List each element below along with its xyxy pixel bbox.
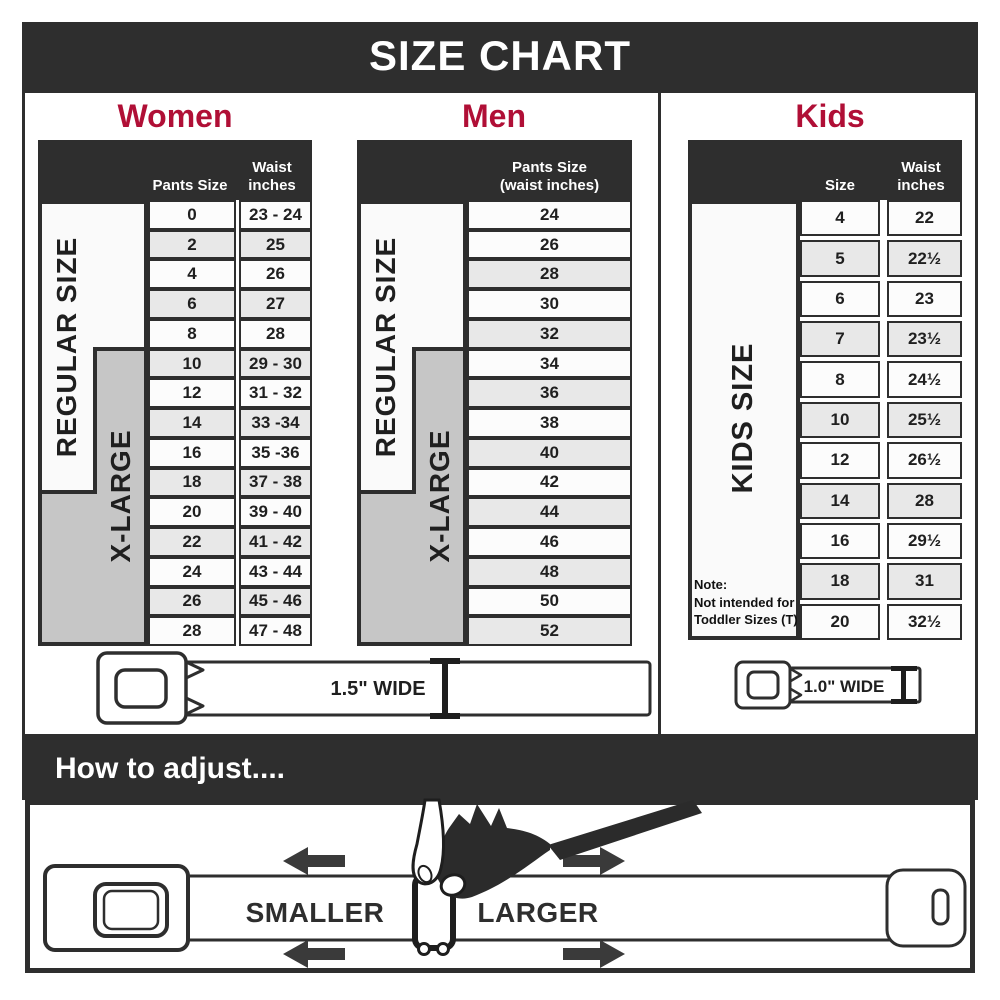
table-row: 38 bbox=[467, 408, 632, 438]
waist-cell: 28 bbox=[239, 319, 312, 349]
table-row: 1837 - 38 bbox=[148, 468, 312, 498]
size-cell: 20 bbox=[800, 604, 880, 640]
toddler-note: Note: Not intended for Toddler Sizes (T) bbox=[694, 576, 798, 629]
size-cell: 12 bbox=[800, 442, 880, 478]
belt-tip bbox=[887, 870, 965, 946]
arrow-right-icon bbox=[563, 940, 625, 968]
size-cell: 40 bbox=[467, 438, 632, 468]
waist-cell: 32½ bbox=[887, 604, 962, 640]
regular-size-label: REGULAR SIZE bbox=[51, 237, 82, 457]
belt-width-label: 1.5" WIDE bbox=[330, 678, 425, 700]
size-cell: 36 bbox=[467, 378, 632, 408]
table-row: 828 bbox=[148, 319, 312, 349]
women-pants-size-header: Pants Size bbox=[148, 177, 232, 195]
size-cell: 34 bbox=[467, 349, 632, 379]
kids-waist-header: Waist inches bbox=[880, 159, 962, 195]
size-cell: 4 bbox=[148, 259, 236, 289]
table-row: 1635 -36 bbox=[148, 438, 312, 468]
waist-cell: 37 - 38 bbox=[239, 468, 312, 498]
table-row: 42 bbox=[467, 468, 632, 498]
kids-size-label-box: KIDS SIZE bbox=[688, 200, 800, 640]
size-cell: 24 bbox=[467, 200, 632, 230]
size-cell: 26 bbox=[467, 230, 632, 260]
size-cell: 44 bbox=[467, 497, 632, 527]
table-row: 52 bbox=[467, 616, 632, 646]
table-row: 40 bbox=[467, 438, 632, 468]
table-row: 2039 - 40 bbox=[148, 497, 312, 527]
waist-cell: 22 bbox=[887, 200, 962, 236]
arrow-left-icon bbox=[283, 940, 345, 968]
kids-heading: Kids bbox=[705, 95, 955, 137]
size-cell: 24 bbox=[148, 557, 236, 587]
size-cell: 48 bbox=[467, 557, 632, 587]
table-row: 1831 bbox=[800, 563, 962, 599]
waist-cell: 35 -36 bbox=[239, 438, 312, 468]
table-row: 2847 - 48 bbox=[148, 616, 312, 646]
men-pants-size-header: Pants Size (waist inches) bbox=[467, 159, 632, 195]
waist-cell: 26½ bbox=[887, 442, 962, 478]
how-to-adjust-banner: How to adjust.... bbox=[22, 737, 978, 800]
table-row: 023 - 24 bbox=[148, 200, 312, 230]
adjust-belt-illustration: SMALLER LARGER bbox=[25, 800, 975, 973]
waist-cell: 41 - 42 bbox=[239, 527, 312, 557]
size-cell: 32 bbox=[467, 319, 632, 349]
size-cell: 50 bbox=[467, 587, 632, 617]
waist-cell: 33 -34 bbox=[239, 408, 312, 438]
women-table: 023 - 24 225 426 627 828 1029 - 30 1231 … bbox=[148, 200, 312, 646]
table-row: 1226½ bbox=[800, 442, 962, 478]
size-cell: 12 bbox=[148, 378, 236, 408]
waist-cell: 23½ bbox=[887, 321, 962, 357]
waist-cell: 25 bbox=[239, 230, 312, 260]
size-cell: 30 bbox=[467, 289, 632, 319]
xlarge-label: X-LARGE bbox=[105, 430, 136, 563]
size-cell: 28 bbox=[148, 616, 236, 646]
belt-15-illustration: 1.5" WIDE bbox=[98, 653, 650, 723]
waist-cell: 27 bbox=[239, 289, 312, 319]
size-cell: 46 bbox=[467, 527, 632, 557]
table-row: 2645 - 46 bbox=[148, 587, 312, 617]
waist-cell: 26 bbox=[239, 259, 312, 289]
waist-cell: 28 bbox=[887, 483, 962, 519]
men-size-range-labels: REGULAR SIZE X-LARGE bbox=[357, 200, 467, 646]
kids-table: 422 522½ 623 723½ 824½ 1025½ 1226½ 1428 … bbox=[800, 200, 962, 640]
table-row: 627 bbox=[148, 289, 312, 319]
how-to-adjust-heading: How to adjust.... bbox=[55, 752, 285, 786]
size-cell: 0 bbox=[148, 200, 236, 230]
size-cell: 16 bbox=[148, 438, 236, 468]
table-row: 30 bbox=[467, 289, 632, 319]
waist-cell: 25½ bbox=[887, 402, 962, 438]
smaller-label: SMALLER bbox=[246, 897, 385, 928]
belt-10-illustration: 1.0" WIDE bbox=[736, 662, 920, 708]
waist-cell: 29½ bbox=[887, 523, 962, 559]
table-row: 34 bbox=[467, 349, 632, 379]
size-cell: 4 bbox=[800, 200, 880, 236]
size-cell: 16 bbox=[800, 523, 880, 559]
size-cell: 5 bbox=[800, 240, 880, 276]
waist-cell: 31 - 32 bbox=[239, 378, 312, 408]
waist-cell: 24½ bbox=[887, 361, 962, 397]
size-cell: 6 bbox=[148, 289, 236, 319]
size-cell: 2 bbox=[148, 230, 236, 260]
women-heading: Women bbox=[60, 95, 290, 137]
table-row: 522½ bbox=[800, 240, 962, 276]
table-row: 422 bbox=[800, 200, 962, 236]
waist-cell: 22½ bbox=[887, 240, 962, 276]
table-row: 28 bbox=[467, 259, 632, 289]
waist-cell: 47 - 48 bbox=[239, 616, 312, 646]
table-row: 1629½ bbox=[800, 523, 962, 559]
table-row: 46 bbox=[467, 527, 632, 557]
waist-cell: 43 - 44 bbox=[239, 557, 312, 587]
size-cell: 10 bbox=[800, 402, 880, 438]
waist-cell: 45 - 46 bbox=[239, 587, 312, 617]
table-row: 44 bbox=[467, 497, 632, 527]
table-row: 2443 - 44 bbox=[148, 557, 312, 587]
size-cell: 52 bbox=[467, 616, 632, 646]
size-cell: 18 bbox=[800, 563, 880, 599]
waist-cell: 23 - 24 bbox=[239, 200, 312, 230]
women-size-range-labels: REGULAR SIZE X-LARGE bbox=[38, 200, 148, 646]
kids-table-header: Size Waist inches bbox=[688, 140, 962, 200]
size-cell: 14 bbox=[800, 483, 880, 519]
waist-cell: 39 - 40 bbox=[239, 497, 312, 527]
table-row: 1029 - 30 bbox=[148, 349, 312, 379]
belt-width-label: 1.0" WIDE bbox=[804, 677, 885, 696]
women-table-header: Pants Size Waist inches bbox=[38, 140, 312, 200]
size-chart-banner: SIZE CHART bbox=[22, 22, 978, 90]
waist-cell: 23 bbox=[887, 281, 962, 317]
size-cell: 8 bbox=[148, 319, 236, 349]
size-cell: 22 bbox=[148, 527, 236, 557]
size-cell: 42 bbox=[467, 468, 632, 498]
size-cell: 38 bbox=[467, 408, 632, 438]
table-row: 26 bbox=[467, 230, 632, 260]
xlarge-label: X-LARGE bbox=[424, 430, 455, 563]
table-row: 24 bbox=[467, 200, 632, 230]
table-row: 623 bbox=[800, 281, 962, 317]
size-cell: 26 bbox=[148, 587, 236, 617]
table-row: 824½ bbox=[800, 361, 962, 397]
table-row: 32 bbox=[467, 319, 632, 349]
table-row: 1231 - 32 bbox=[148, 378, 312, 408]
size-cell: 6 bbox=[800, 281, 880, 317]
page-title: SIZE CHART bbox=[369, 32, 631, 80]
women-waist-header: Waist inches bbox=[232, 159, 312, 195]
seatbelt-buckle-icon bbox=[45, 866, 188, 950]
size-cell: 20 bbox=[148, 497, 236, 527]
men-table-header: Pants Size (waist inches) bbox=[357, 140, 632, 200]
table-row: 1025½ bbox=[800, 402, 962, 438]
table-row: 36 bbox=[467, 378, 632, 408]
table-row: 1428 bbox=[800, 483, 962, 519]
kids-size-header: Size bbox=[800, 177, 880, 195]
size-cell: 28 bbox=[467, 259, 632, 289]
table-row: 1433 -34 bbox=[148, 408, 312, 438]
table-row: 50 bbox=[467, 587, 632, 617]
men-table: 24 26 28 30 32 34 36 38 40 42 44 46 48 5… bbox=[467, 200, 632, 646]
size-cell: 14 bbox=[148, 408, 236, 438]
size-cell: 8 bbox=[800, 361, 880, 397]
table-row: 225 bbox=[148, 230, 312, 260]
belt-width-illustrations: 1.5" WIDE 1.0" WIDE bbox=[22, 645, 978, 735]
larger-label: LARGER bbox=[477, 897, 598, 928]
table-row: 723½ bbox=[800, 321, 962, 357]
section-divider bbox=[658, 90, 661, 737]
waist-cell: 31 bbox=[887, 563, 962, 599]
table-row: 426 bbox=[148, 259, 312, 289]
size-cell: 7 bbox=[800, 321, 880, 357]
kids-size-label: KIDS SIZE bbox=[727, 343, 759, 494]
size-cell: 18 bbox=[148, 468, 236, 498]
table-row: 48 bbox=[467, 557, 632, 587]
size-chart-page: SIZE CHART Women Men Kids Pants Size Wai… bbox=[0, 0, 1000, 1000]
regular-size-label: REGULAR SIZE bbox=[370, 237, 401, 457]
table-row: 2241 - 42 bbox=[148, 527, 312, 557]
size-cell: 10 bbox=[148, 349, 236, 379]
men-heading: Men bbox=[379, 95, 609, 137]
waist-cell: 29 - 30 bbox=[239, 349, 312, 379]
table-row: 2032½ bbox=[800, 604, 962, 640]
arrow-left-icon bbox=[283, 847, 345, 875]
